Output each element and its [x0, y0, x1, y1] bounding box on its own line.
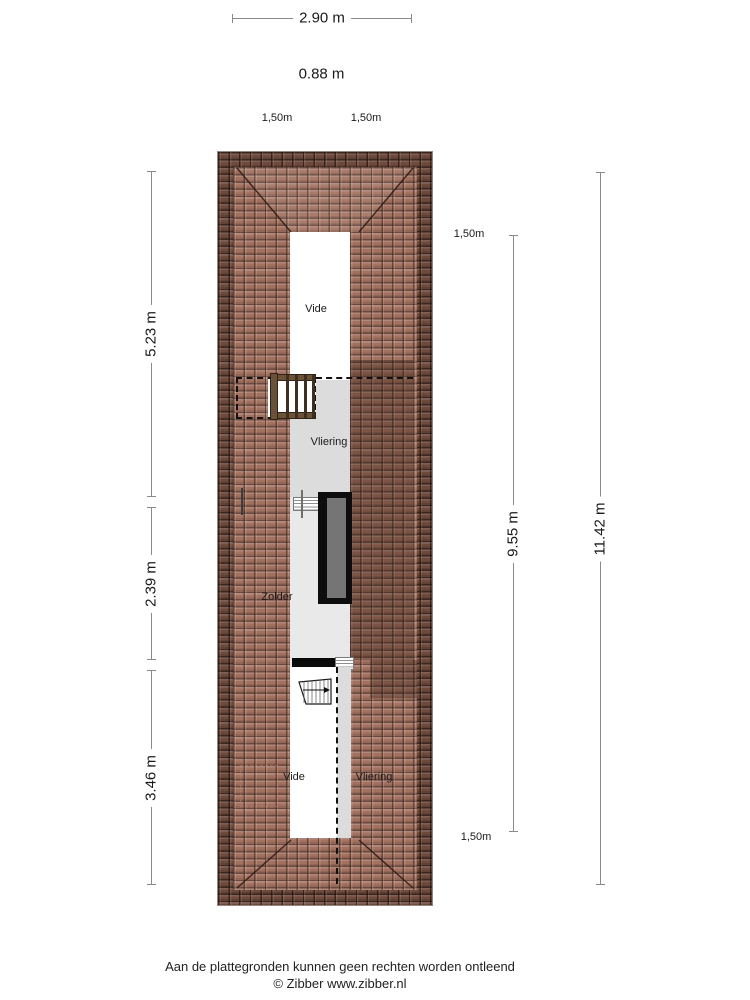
dimension-tick	[509, 831, 518, 832]
footer-disclaimer: Aan de plattegronden kunnen geen rechten…	[70, 958, 610, 975]
wall-segment	[292, 658, 335, 667]
ladder-icon	[270, 373, 316, 420]
clearance-label-top-left: 1,50m	[262, 112, 293, 124]
footer: Aan de plattegronden kunnen geen rechten…	[70, 958, 610, 992]
dimension-label: 11.42 m	[590, 496, 611, 561]
room-vliering-bottom	[337, 667, 351, 838]
dimension-label: 3.46 m	[141, 749, 162, 807]
window-icon	[293, 497, 320, 511]
room-label-vide-bottom: Vide	[283, 771, 305, 783]
roof-plan: Vide Vliering Zolder Vide Vliering	[218, 152, 432, 905]
dimension-right-outer: 11.42 m	[600, 172, 601, 885]
room-label-vide-top: Vide	[305, 303, 327, 315]
window-center-line	[301, 490, 303, 518]
roof-shade	[370, 660, 417, 698]
room-label-vliering-bottom: Vliering	[356, 771, 393, 783]
dimension-label: 2.39 m	[141, 555, 162, 613]
dimension-tick	[596, 172, 605, 173]
dimension-right-inner: 9.55 m	[513, 235, 514, 832]
room-label-zolder: Zolder	[261, 591, 292, 603]
roof-detail-outline	[240, 765, 278, 807]
footer-copyright: © Zibber www.zibber.nl	[70, 975, 610, 992]
dimension-tick	[147, 507, 156, 508]
dimension-label: 2.90 m	[293, 10, 351, 27]
clearance-label-right-bottom: 1,50m	[461, 831, 492, 843]
dimension-tick	[147, 496, 156, 497]
dimension-tick	[232, 14, 233, 23]
floorplan-page: 2.90 m 0.88 m 1,50m 1,50m 5.23 m 2.39 m …	[0, 0, 750, 1000]
dimension-label: 5.23 m	[141, 305, 162, 363]
staircase-icon	[298, 678, 332, 705]
dimension-tick	[147, 171, 156, 172]
dimension-left-lower: 3.46 m	[151, 670, 152, 885]
headroom-dashed-line-top	[316, 377, 413, 379]
roof-shade	[350, 360, 413, 660]
dimension-top-width: 2.90 m	[232, 18, 412, 19]
dimension-tick	[596, 884, 605, 885]
roof-window-icon	[241, 488, 243, 515]
dimension-label: 9.55 m	[503, 505, 524, 563]
dimension-tick	[147, 884, 156, 885]
clearance-label-top-right: 1,50m	[351, 112, 382, 124]
dimension-tick	[147, 670, 156, 671]
headroom-dashed-line-bottom	[336, 667, 338, 884]
dimension-label: 0.88 m	[293, 66, 351, 83]
stair-opening	[318, 492, 352, 604]
dimension-tick	[411, 14, 412, 23]
dimension-left-upper: 5.23 m	[151, 171, 152, 497]
dimension-tick	[147, 659, 156, 660]
room-label-vliering-top: Vliering	[311, 436, 348, 448]
dimension-left-middle: 2.39 m	[151, 507, 152, 660]
dimension-top-ridge: 0.88 m	[295, 74, 348, 75]
clearance-label-right-top: 1,50m	[454, 228, 485, 240]
dimension-tick	[509, 235, 518, 236]
